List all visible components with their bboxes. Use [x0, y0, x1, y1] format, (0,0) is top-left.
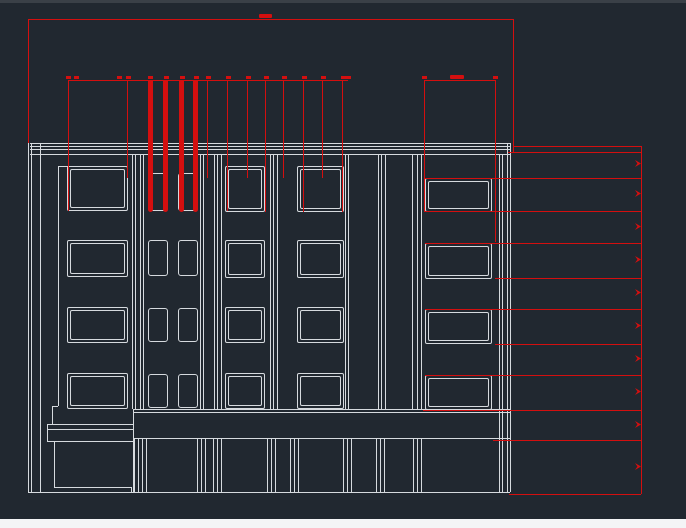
wall-line [54, 487, 131, 488]
pilaster-line [273, 155, 274, 409]
extension-line [283, 80, 284, 178]
pilaster-line [201, 438, 202, 492]
window-frame-inner [70, 376, 125, 406]
extension-line-thick [179, 80, 184, 212]
dimension-tick [264, 76, 269, 79]
wall-line [30, 146, 510, 147]
dimension-tick [346, 76, 351, 79]
window-frame-inner [300, 169, 341, 209]
extension-line [513, 19, 514, 152]
window-frame-inner [428, 181, 489, 209]
wall-line [28, 492, 510, 493]
pilaster-line [502, 155, 503, 492]
dimension-tick [66, 76, 71, 79]
pilaster-line [146, 438, 147, 492]
wall-line [30, 143, 510, 144]
pilaster-line [380, 438, 381, 492]
pilaster-line [271, 438, 272, 492]
pilaster-line [412, 155, 413, 409]
pilaster-line [200, 155, 201, 409]
pilaster-line [381, 155, 382, 409]
dimension-text-mark [259, 14, 272, 18]
dimension-line [509, 494, 641, 495]
pilaster-line [221, 155, 222, 409]
extension-line [28, 19, 29, 143]
dimension-tick [226, 76, 231, 79]
dimension-text-mark [450, 75, 464, 79]
wall-line [47, 441, 133, 442]
pilaster-line [385, 155, 386, 409]
pilaster-line [345, 155, 346, 409]
wall-line [47, 429, 133, 430]
pilaster-line [140, 155, 141, 409]
pilaster-line [347, 438, 348, 492]
extension-line [641, 146, 642, 494]
pilaster-line [217, 438, 218, 492]
pilaster-line [142, 438, 143, 492]
pilaster-line [421, 155, 422, 409]
pilaster-line [290, 438, 291, 492]
extension-line [265, 80, 266, 212]
pilaster-line [267, 438, 268, 492]
dimension-line [495, 278, 641, 279]
pilaster-line [135, 155, 136, 409]
dimension-line [493, 440, 641, 441]
pilaster-line [351, 438, 352, 492]
pilaster-line [203, 155, 204, 409]
dimension-tick [194, 76, 199, 79]
pilaster-line [378, 155, 379, 409]
wall-line [30, 149, 510, 150]
dimension-line [424, 80, 495, 81]
wall-line [133, 412, 510, 413]
pilaster-line [384, 438, 385, 492]
window-frame-inner [70, 310, 125, 340]
extension-line [227, 80, 228, 211]
extension-line [303, 80, 304, 212]
pilaster-line [52, 406, 53, 424]
dimension-tick [422, 76, 427, 79]
pilaster-line [221, 438, 222, 492]
extension-line-thick [148, 80, 153, 212]
window-frame-inner [300, 310, 341, 340]
dimension-line [68, 80, 348, 81]
dimension-tick [126, 76, 131, 79]
pilaster-line [205, 438, 206, 492]
pilaster-line [138, 438, 139, 492]
dimension-tick [74, 76, 79, 79]
dimension-line [425, 243, 641, 244]
small-window-frame [148, 374, 168, 408]
cad-app-window [0, 0, 686, 528]
dimension-line [425, 309, 641, 310]
pilaster-line [47, 424, 48, 441]
pilaster-line [275, 438, 276, 492]
dimension-line [424, 211, 641, 212]
window-frame-inner [300, 243, 341, 275]
pilaster-line [28, 143, 29, 492]
extension-line-thick [163, 80, 168, 212]
extension-line [342, 80, 343, 212]
pilaster-line [294, 438, 295, 492]
dimension-tick [148, 76, 153, 79]
dimension-line [513, 146, 641, 147]
pilaster-line [143, 155, 144, 409]
pilaster-line [421, 438, 422, 492]
dimension-tick [493, 76, 498, 79]
pilaster-line [413, 438, 414, 492]
pilaster-line [131, 487, 132, 492]
window-frame-inner [300, 376, 341, 406]
dimension-line [424, 178, 641, 179]
extension-line [424, 80, 425, 211]
pilaster-line [270, 155, 271, 409]
dimension-tick [282, 76, 287, 79]
extension-line [127, 80, 128, 178]
window-bottom-border [0, 519, 686, 528]
window-frame-inner [228, 310, 262, 340]
pilaster-line [214, 155, 215, 409]
pilaster-line [31, 143, 32, 492]
pilaster-line [348, 155, 349, 409]
extension-line [68, 80, 69, 211]
small-window-frame [148, 308, 168, 342]
pilaster-line [134, 438, 135, 492]
extension-line-thick [193, 80, 198, 212]
wall-line [133, 438, 510, 439]
pilaster-line [58, 166, 59, 406]
dimension-line [28, 19, 513, 20]
dimension-line [425, 375, 641, 376]
small-window-frame [178, 374, 198, 408]
pilaster-line [298, 438, 299, 492]
extension-line [247, 80, 248, 178]
window-frame-inner [70, 243, 125, 274]
dimension-tick [164, 76, 169, 79]
small-window-frame [178, 240, 198, 276]
dimension-tick [321, 76, 326, 79]
wall-line [47, 424, 133, 425]
window-frame-inner [70, 169, 125, 208]
pilaster-line [40, 143, 41, 492]
pilaster-line [213, 438, 214, 492]
dimension-tick [246, 76, 251, 79]
window-frame-inner [228, 376, 262, 406]
small-window-frame [178, 308, 198, 342]
extension-line [495, 80, 496, 242]
pilaster-line [499, 155, 500, 492]
window-frame-inner [228, 243, 262, 275]
dimension-tick [302, 76, 307, 79]
dimension-tick [180, 76, 185, 79]
extension-line [322, 80, 323, 178]
window-frame-inner [228, 169, 262, 209]
pilaster-line [277, 155, 278, 409]
dimension-line [495, 344, 641, 345]
pilaster-line [417, 155, 418, 409]
pilaster-line [197, 438, 198, 492]
dimension-tick [206, 76, 211, 79]
dimension-line [423, 410, 641, 411]
pilaster-line [132, 155, 133, 409]
small-window-frame [148, 240, 168, 276]
dimension-line [508, 152, 641, 153]
window-frame-inner [428, 246, 489, 276]
extension-line [207, 80, 208, 178]
pilaster-line [217, 155, 218, 409]
viewport-top-edge [0, 0, 686, 3]
cad-model-viewport[interactable] [0, 0, 686, 519]
dimension-tick [117, 76, 122, 79]
window-frame-inner [428, 312, 489, 341]
pilaster-line [417, 438, 418, 492]
window-frame-inner [428, 378, 489, 407]
pilaster-line [54, 441, 55, 487]
pilaster-line [343, 438, 344, 492]
pilaster-line [376, 438, 377, 492]
